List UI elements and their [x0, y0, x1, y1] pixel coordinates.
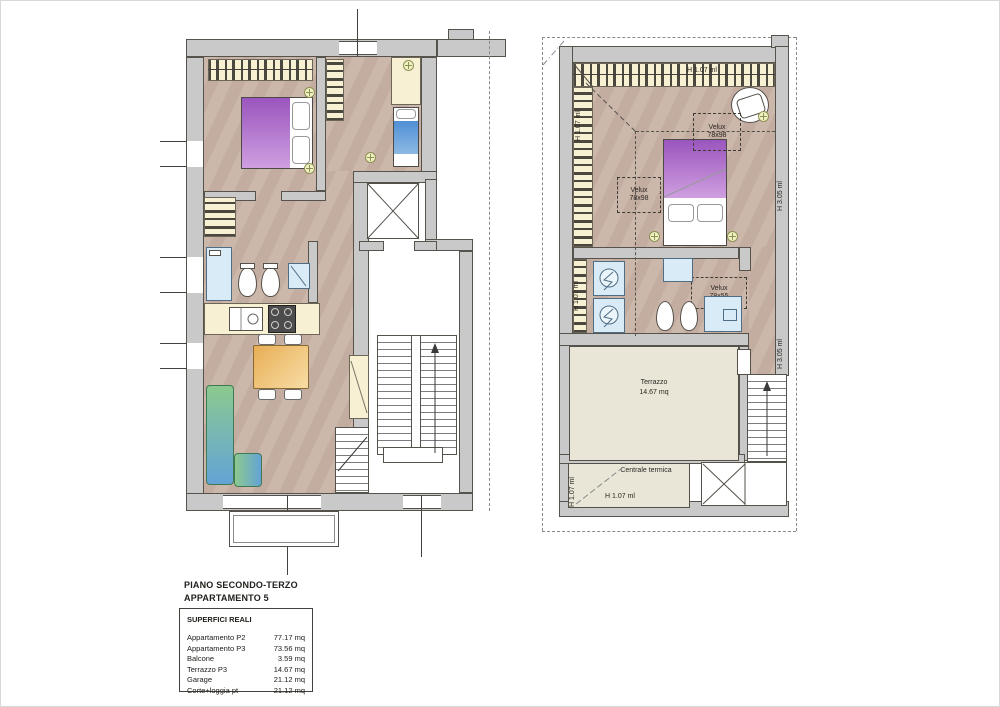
roof-break-line: [635, 131, 636, 336]
dimension-tick: [160, 141, 187, 142]
dimension-tick: [160, 368, 187, 369]
staircase-landing: [383, 447, 443, 463]
toilet: [238, 267, 257, 297]
window: [339, 41, 377, 55]
shower-drain: [723, 309, 737, 321]
height-label: H 1.07 ml: [605, 493, 635, 501]
surface-label: Appartamento P3: [187, 644, 245, 655]
window: [223, 495, 321, 509]
surface-value: 77.17 mq: [274, 633, 305, 644]
tv-cabinet: [349, 355, 369, 419]
roof-eaves-line: [542, 37, 543, 531]
wardrobe-rail: [573, 74, 775, 75]
wall-segment: [281, 191, 326, 201]
window: [186, 343, 204, 369]
wall-segment: [459, 251, 473, 493]
toilet-tank: [240, 263, 255, 269]
terrace-door: [737, 349, 751, 375]
surface-label: Appartamento P2: [187, 633, 245, 644]
dimension-tick: [160, 257, 187, 258]
staircase-landing: [701, 462, 787, 506]
surface-value: 3.59 mq: [278, 654, 305, 665]
dimension-tick: [160, 343, 187, 344]
ceiling-light-icon: [758, 111, 769, 122]
surface-value: 14.67 mq: [274, 665, 305, 676]
wall-segment: [559, 333, 749, 346]
surface-label: Terrazzo P3: [187, 665, 227, 676]
axis-line: [421, 495, 422, 557]
wall-segment: [421, 57, 437, 179]
surfaces-table: SUPERFICI REALI Appartamento P2 77.17 mq…: [179, 608, 313, 692]
window: [403, 495, 441, 509]
height-label: H 1.07 ml: [687, 67, 717, 75]
shower: [206, 247, 232, 301]
wall-segment: [559, 46, 789, 63]
axis-line: [357, 9, 358, 57]
p3-corridor-floor: [749, 247, 775, 375]
velux-size: 78x98: [629, 195, 648, 203]
washbasin: [288, 263, 310, 289]
pillow: [668, 204, 694, 222]
terrace-area-label: 14.67 mq: [604, 389, 704, 397]
boiler-washer: [593, 298, 625, 333]
bed-duvet: [242, 98, 290, 168]
closet: [204, 197, 236, 237]
window: [186, 257, 204, 293]
roof-eaves-line: [796, 37, 797, 531]
stove: [268, 305, 296, 333]
height-label: H 1.07 ml: [573, 265, 581, 311]
dining-table: [253, 345, 309, 389]
shower-tray: [704, 296, 742, 332]
surface-row: Balcone 3.59 mq: [187, 654, 305, 665]
room-label: Centrale termica: [601, 467, 691, 475]
sofa: [206, 385, 234, 485]
chair: [258, 334, 276, 345]
double-bed: [241, 97, 313, 169]
pillow: [292, 136, 310, 164]
bidet: [261, 267, 280, 297]
wardrobe-rail: [208, 69, 313, 70]
surface-row: Appartamento P2 77.17 mq: [187, 633, 305, 644]
sofa-corner: [234, 453, 262, 487]
wall-segment: [186, 39, 437, 57]
chair: [284, 334, 302, 345]
ceiling-light-icon: [304, 87, 315, 98]
chair: [258, 389, 276, 400]
washbasin: [663, 258, 693, 282]
height-label: H 1.07 ml: [569, 465, 577, 507]
surface-row: Corte+loggia pt 21.12 mq: [187, 686, 305, 697]
surfaces-table-title: SUPERFICI REALI: [187, 615, 305, 624]
pillow: [697, 204, 723, 222]
bidet: [680, 301, 698, 331]
window: [186, 141, 204, 167]
wall-segment: [425, 179, 437, 247]
wall-segment: [437, 39, 506, 57]
balcony: [229, 511, 339, 547]
wall-segment: [448, 29, 474, 40]
surface-label: Corte+loggia pt: [187, 686, 238, 697]
pillow: [396, 109, 416, 119]
plan-title-line2: APPARTAMENTO 5: [184, 592, 298, 605]
wall-segment: [316, 57, 326, 191]
ceiling-light-icon: [304, 163, 315, 174]
height-label: H 1.07 ml: [575, 95, 583, 141]
property-cut-line: [489, 31, 490, 511]
surface-row: Terrazzo P3 14.67 mq: [187, 665, 305, 676]
plan-title-line1: PIANO SECONDO-TERZO: [184, 579, 298, 592]
terrace: [569, 346, 739, 461]
height-label: H 3.05 ml: [777, 163, 785, 211]
wardrobe: [208, 59, 313, 81]
surface-value: 73.56 mq: [274, 644, 305, 655]
bidet-tap: [263, 263, 278, 269]
plan-title: PIANO SECONDO-TERZO APPARTAMENTO 5: [184, 579, 298, 605]
wall-segment: [573, 247, 739, 259]
velux-skylight: Velux 78x98: [693, 113, 741, 151]
shower-head: [209, 250, 221, 256]
velux-label: Velux: [708, 124, 725, 132]
common-staircase: [747, 374, 787, 462]
dimension-tick: [160, 292, 187, 293]
single-bed: [393, 107, 419, 167]
internal-staircase: [335, 427, 369, 493]
surface-label: Balcone: [187, 654, 214, 665]
ceiling-light-icon: [365, 152, 376, 163]
ceiling-light-icon: [649, 231, 660, 242]
wall-segment: [414, 241, 437, 251]
double-bed: [663, 139, 727, 246]
kitchen-sink: [229, 307, 263, 331]
surface-label: Garage: [187, 675, 212, 686]
wardrobe: [326, 59, 344, 121]
boiler-washer: [593, 261, 625, 296]
roof-eaves-line: [542, 531, 796, 532]
velux-size: 78x98: [707, 132, 726, 140]
terrace-label: Terrazzo: [604, 379, 704, 387]
balcony-parapet: [233, 515, 335, 543]
velux-skylight: Velux 78x98: [617, 177, 661, 213]
floorplan-page: Velux 78x98 Velux 78x98 Velux 78x55 H 1.…: [0, 0, 1000, 707]
ceiling-light-icon: [727, 231, 738, 242]
velux-label: Velux: [710, 285, 727, 293]
staircase-divider: [411, 335, 421, 455]
surface-row: Appartamento P3 73.56 mq: [187, 644, 305, 655]
chair: [284, 389, 302, 400]
pillow: [292, 102, 310, 130]
roof-eaves-line: [542, 37, 796, 38]
surface-value: 21.12 mq: [274, 686, 305, 697]
elevator-shaft: [367, 183, 419, 239]
wardrobe: [573, 63, 775, 87]
dimension-tick: [160, 166, 187, 167]
height-label: H 3.05 ml: [777, 321, 785, 369]
surface-row: Garage 21.12 mq: [187, 675, 305, 686]
bed-duvet: [394, 121, 418, 154]
wall-segment: [359, 241, 384, 251]
surface-value: 21.12 mq: [274, 675, 305, 686]
wall-segment: [739, 247, 751, 271]
velux-label: Velux: [630, 187, 647, 195]
ceiling-light-icon: [403, 60, 414, 71]
toilet: [656, 301, 674, 331]
